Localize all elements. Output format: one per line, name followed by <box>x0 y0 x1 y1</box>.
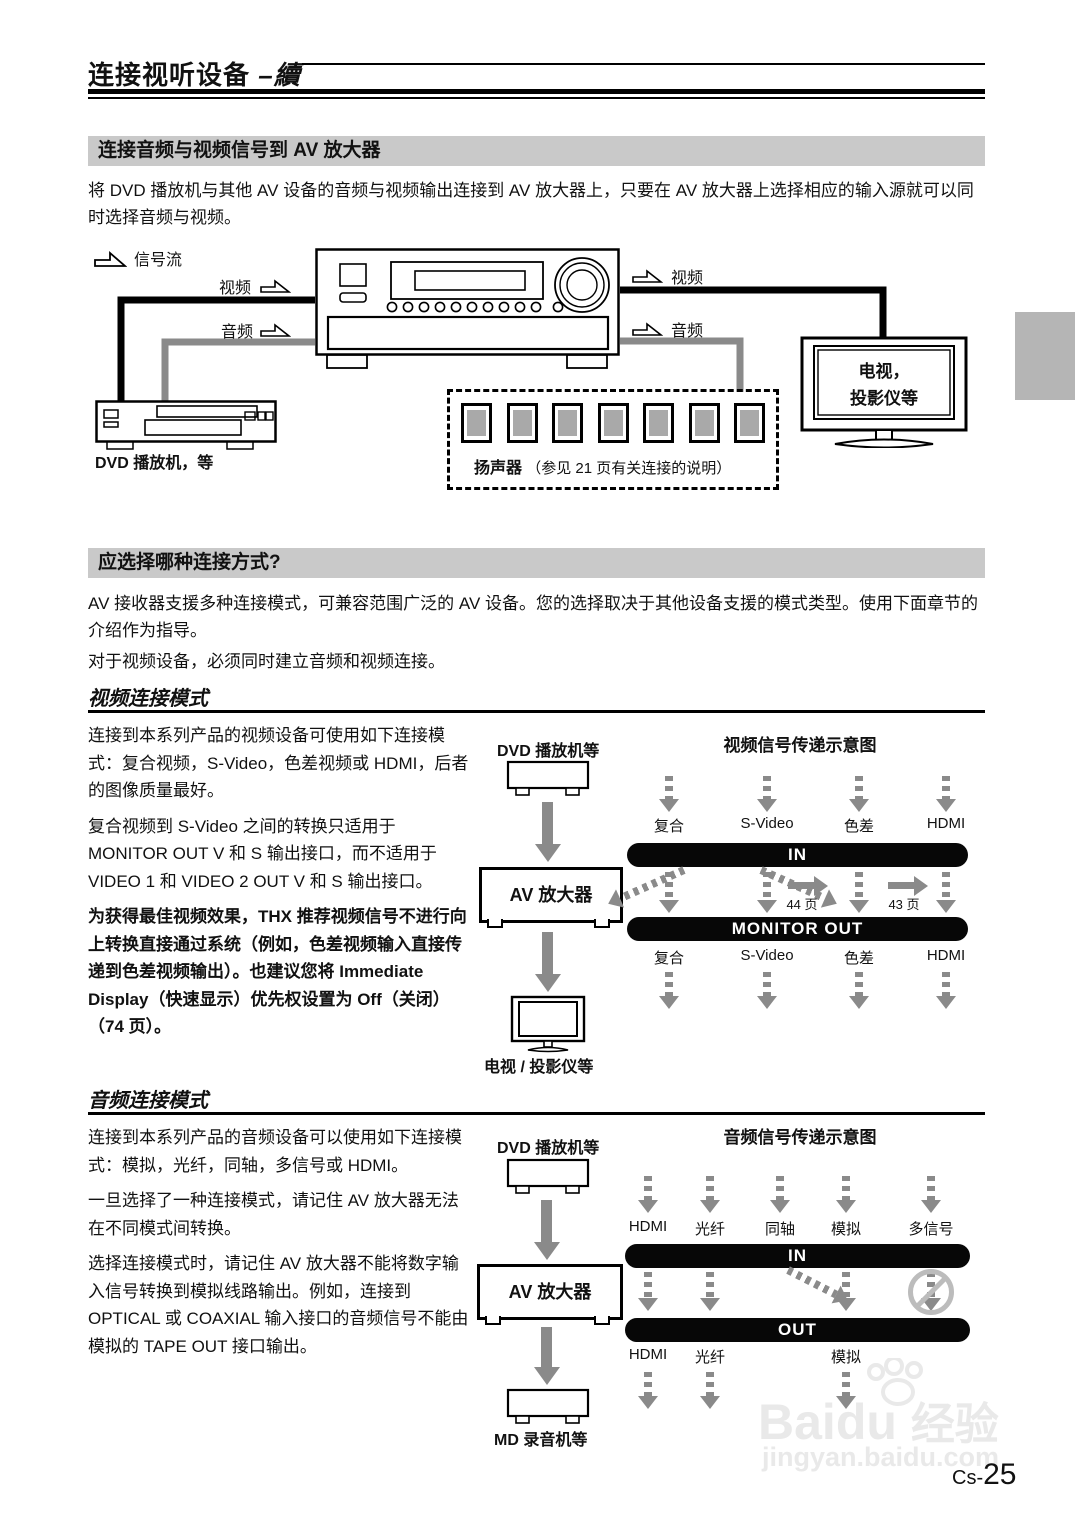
speaker-cone <box>695 410 714 436</box>
amp-foot <box>487 919 503 928</box>
flow-arrow-mid <box>706 1272 714 1298</box>
page-number-prefix: Cs- <box>952 1467 983 1489</box>
manual-page: 连接视听设备 –續 连接音频与视频信号到 AV 放大器 将 DVD 播放机与其他… <box>0 0 1075 1517</box>
video-mode-text: 连接到本系列产品的视频设备可使用如下连接模式：复合视频，S-Video，色差视频… <box>88 722 470 1049</box>
chain-arrow-down <box>541 1200 552 1242</box>
audio-in-bar: IN <box>625 1244 970 1268</box>
flow-arrow-out <box>706 1372 714 1396</box>
speaker-icon <box>689 403 720 443</box>
audio-cable-left <box>165 342 315 403</box>
video-in-label-hdmi: HDMI <box>898 815 994 832</box>
audio-para1: 连接到本系列产品的音频设备可以使用如下连接模式：模拟，光纤，同轴，多信号或 HD… <box>88 1124 470 1179</box>
page-ref-44: 44 页 <box>772 894 832 913</box>
video-out-label-hdmi: HDMI <box>898 947 994 964</box>
audio-chain-source-label: DVD 播放机等 <box>497 1134 599 1158</box>
flow-arrow-mid <box>942 872 950 900</box>
video-out-label-composite: 复合 <box>621 947 717 968</box>
tv-small-illustration <box>510 995 586 1053</box>
video-chain-sink-label: 电视 / 投影仪等 <box>484 1053 593 1077</box>
speakers-group-box: 扬声器 （参见 21 页有关连接的说明） <box>447 389 779 490</box>
page-number: Cs-25 <box>952 1458 1016 1492</box>
flow-arrow-icon <box>259 278 291 294</box>
audio-in-label-analog: 模拟 <box>798 1218 894 1239</box>
speaker-icon <box>507 403 538 443</box>
speaker-icon <box>643 403 674 443</box>
video-para1: 连接到本系列产品的视频设备可使用如下连接模式：复合视频，S-Video，色差视频… <box>88 722 470 805</box>
flow-arrow-out <box>644 1372 652 1396</box>
flow-arrow-in-composite <box>665 776 673 799</box>
chain-arrow-down <box>541 1327 552 1367</box>
flow-arrow-icon <box>631 268 663 284</box>
video-para3-thx-note: 为获得最佳视频效果，THX 推荐视频信号不进行向上转换直接通过系统（例如，色差视… <box>88 903 470 1041</box>
chain-arrow-down <box>542 932 553 974</box>
flow-arrow-mid <box>855 872 863 900</box>
video-in-bar: IN <box>627 843 968 867</box>
video-in-label-composite: 复合 <box>621 815 717 836</box>
upconvert-arrow-44 <box>788 882 814 889</box>
flow-arrow-out <box>665 972 673 996</box>
audio-label-right: 音频 <box>671 317 703 341</box>
av-amplifier-box: AV 放大器 <box>479 867 623 923</box>
video-out-label-component: 色差 <box>811 947 907 968</box>
section2-para1: AV 接收器支援多种连接模式，可兼容范围广泛的 AV 设备。您的选择取决于其他设… <box>88 590 978 644</box>
speaker-cone <box>649 410 668 436</box>
upconvert-arrow-43 <box>888 882 914 889</box>
section2-para2: 对于视频设备，必须同时建立音频和视频连接。 <box>88 648 978 675</box>
page-edge-tab <box>1015 312 1075 400</box>
audio-mode-text: 连接到本系列产品的音频设备可以使用如下连接模式：模拟，光纤，同轴，多信号或 HD… <box>88 1124 470 1368</box>
flow-arrow-in-coaxial <box>776 1176 784 1200</box>
flow-arrow-icon <box>631 321 663 337</box>
dvd-player-illustration <box>95 400 277 450</box>
md-recorder-illustration <box>506 1388 590 1426</box>
speaker-icon <box>461 403 492 443</box>
video-mode-heading: 视频连接模式 <box>88 682 208 711</box>
video-mode-rule <box>88 710 985 713</box>
audio-flow-title: 音频信号传递示意图 <box>625 1123 975 1148</box>
video-flow-title: 视频信号传递示意图 <box>625 731 975 756</box>
source-device-illustration <box>506 760 590 798</box>
speaker-cone <box>558 410 577 436</box>
amp-foot <box>594 919 610 928</box>
page-ref-43: 43 页 <box>874 894 934 913</box>
flow-arrow-out <box>855 972 863 996</box>
tv-label-line2: 投影仪等 <box>810 385 958 412</box>
audio-label-left: 音频 <box>221 318 253 342</box>
audio-para2: 一旦选择了一种连接模式，请记住 AV 放大器无法在不同模式间转换。 <box>88 1187 470 1242</box>
audio-chain-sink-label: MD 录音机等 <box>494 1426 587 1450</box>
speaker-cone <box>604 410 623 436</box>
speakers-note: （参见 21 页有关连接的说明） <box>526 460 731 477</box>
signal-flow-legend: 信号流 <box>134 246 182 270</box>
amp-foot <box>594 1316 610 1325</box>
flow-arrow-in-multich <box>927 1176 935 1200</box>
speakers-label-bold: 扬声器 <box>474 460 522 477</box>
video-monitor-out-bar: MONITOR OUT <box>627 917 968 941</box>
video-para2: 复合视频到 S-Video 之间的转换只适用于 MONITOR OUT V 和 … <box>88 813 470 896</box>
signal-flow-icon <box>93 250 127 268</box>
section-heading-which-connection: 应选择哪种连接方式? <box>88 548 985 578</box>
av-amplifier-box: AV 放大器 <box>477 1264 623 1320</box>
video-cable-left <box>121 300 315 403</box>
speaker-cone <box>740 410 759 436</box>
speaker-icon <box>734 403 765 443</box>
dvd-player-label: DVD 播放机，等 <box>95 449 213 473</box>
flow-arrow-mid <box>842 1272 850 1298</box>
tv-label: 电视， 投影仪等 <box>810 358 958 412</box>
video-label-left: 视频 <box>219 274 251 298</box>
amp-foot <box>485 1316 501 1325</box>
video-in-label-svideo: S-Video <box>719 815 815 832</box>
video-chain-source-label: DVD 播放机等 <box>497 737 599 761</box>
speaker-cone <box>513 410 532 436</box>
audio-cable-right <box>620 341 740 392</box>
video-in-label-component: 色差 <box>811 815 907 836</box>
flow-arrow-mid <box>644 1272 652 1298</box>
flow-arrow-cross-right <box>618 866 685 902</box>
flow-arrow-out <box>763 972 771 996</box>
source-device-illustration <box>506 1158 590 1196</box>
audio-para3: 选择连接模式时，请记住 AV 放大器不能将数字输入信号转换到模拟线路输出。例如，… <box>88 1250 470 1360</box>
audio-out-bar: OUT <box>625 1318 970 1342</box>
chain-arrow-down <box>542 802 553 844</box>
speaker-icon <box>598 403 629 443</box>
tv-label-line1: 电视， <box>810 358 958 385</box>
speaker-cone <box>467 410 486 436</box>
flow-arrow-in-analog <box>842 1176 850 1200</box>
paw-print-icon <box>862 1358 932 1410</box>
audio-mode-rule <box>88 1112 985 1115</box>
flow-arrow-in-hdmi <box>942 776 950 799</box>
speakers-row <box>461 403 765 443</box>
flow-arrow-in-svideo <box>763 776 771 799</box>
page-number-value: 25 <box>983 1458 1016 1491</box>
flow-arrow-coax-to-optical <box>786 1266 838 1298</box>
flow-arrow-in-optical <box>706 1176 714 1200</box>
speakers-label: 扬声器 （参见 21 页有关连接的说明） <box>474 454 731 478</box>
flow-arrow-in-component <box>855 776 863 799</box>
video-label-right: 视频 <box>671 264 703 288</box>
av-receiver-illustration <box>315 248 620 370</box>
audio-in-label-multich: 多信号 <box>883 1218 979 1239</box>
video-out-label-svideo: S-Video <box>719 947 815 964</box>
no-conversion-icon <box>908 1269 954 1315</box>
flow-arrow-in-hdmi <box>644 1176 652 1200</box>
flow-arrow-icon <box>259 322 291 338</box>
flow-arrow-out <box>942 972 950 996</box>
audio-mode-heading: 音频连接模式 <box>88 1084 208 1113</box>
speaker-icon <box>552 403 583 443</box>
audio-out-label-optical: 光纤 <box>662 1346 758 1367</box>
